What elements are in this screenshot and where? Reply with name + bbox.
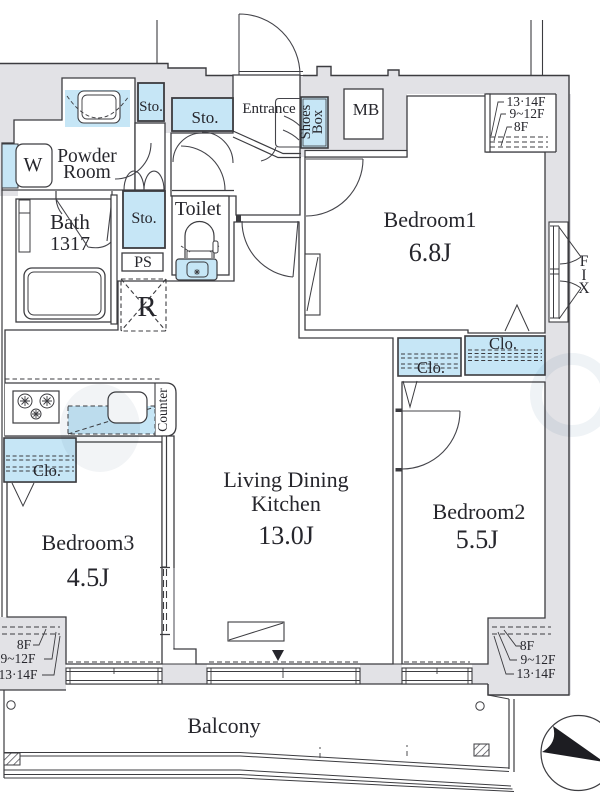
svg-text:9~12F: 9~12F [520,652,556,667]
svg-text:W: W [24,154,43,176]
svg-text:R: R [137,291,157,323]
svg-text:Counter: Counter [155,388,170,432]
svg-text:Sto.: Sto. [139,99,163,115]
svg-text:Clo.: Clo. [33,461,61,480]
svg-text:Sto.: Sto. [192,108,219,127]
svg-text:PS: PS [134,254,152,271]
svg-text:Bedroom3: Bedroom3 [42,530,135,555]
svg-text:Toilet: Toilet [175,198,222,220]
svg-text:Kitchen: Kitchen [251,491,321,516]
svg-text:13.0J: 13.0J [258,521,314,550]
svg-text:Bedroom2: Bedroom2 [433,499,526,524]
svg-text:13·14F: 13·14F [0,667,38,682]
svg-text:Living Dining: Living Dining [223,467,348,492]
svg-text:X: X [578,280,589,297]
svg-text:Balcony: Balcony [187,713,260,738]
svg-text:Entrance: Entrance [242,101,296,117]
svg-text:8F: 8F [17,637,32,652]
svg-text:Room: Room [63,162,111,183]
svg-text:8F: 8F [514,119,529,134]
svg-text:4.5J: 4.5J [67,563,110,592]
svg-text:Box: Box [310,109,326,134]
svg-text:Clo.: Clo. [489,334,517,353]
svg-text:13·14F: 13·14F [516,666,555,681]
svg-text:5.5J: 5.5J [456,525,499,554]
svg-text:Bedroom1: Bedroom1 [384,207,477,232]
svg-text:8F: 8F [520,638,535,653]
svg-text:Clo.: Clo. [417,358,445,377]
svg-text:MB: MB [353,100,379,119]
svg-text:9~12F: 9~12F [0,651,36,666]
svg-text:Sto.: Sto. [131,210,156,227]
svg-text:6.8J: 6.8J [409,238,452,267]
svg-text:Bath: Bath [50,210,90,234]
svg-text:1317: 1317 [50,233,90,255]
